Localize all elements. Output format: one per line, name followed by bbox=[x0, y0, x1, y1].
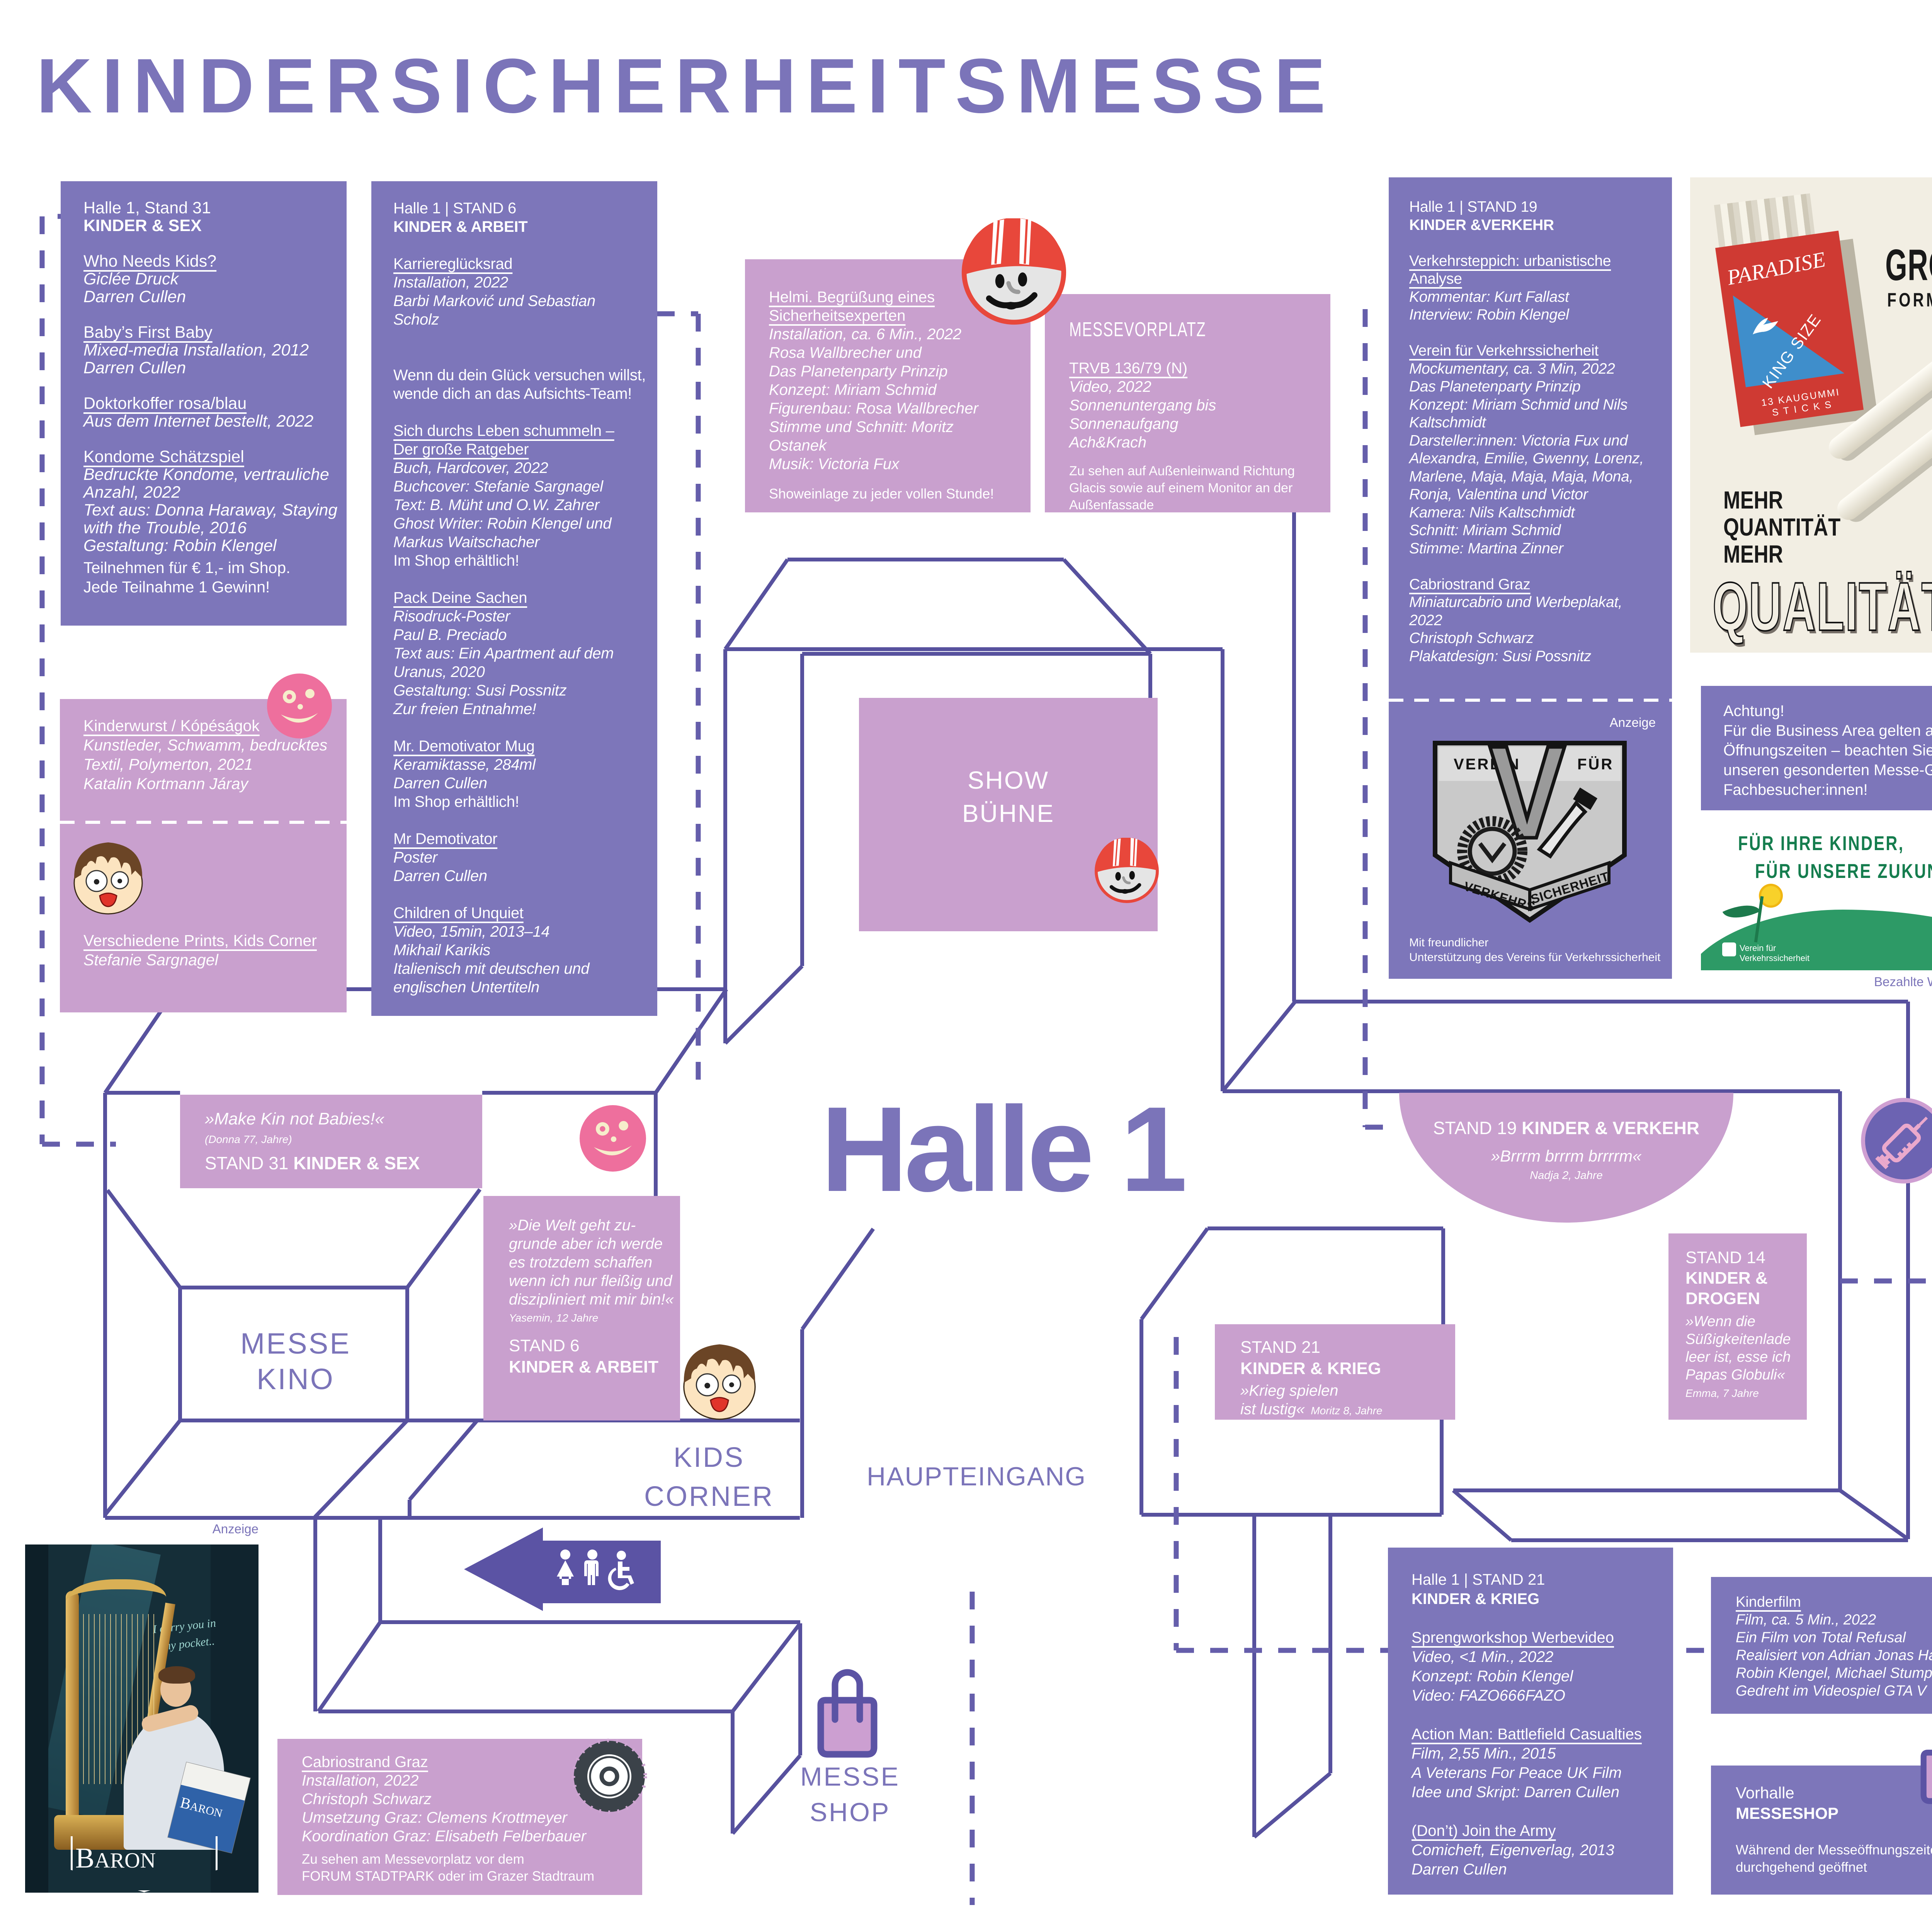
svg-text:FÜR: FÜR bbox=[1577, 755, 1614, 773]
